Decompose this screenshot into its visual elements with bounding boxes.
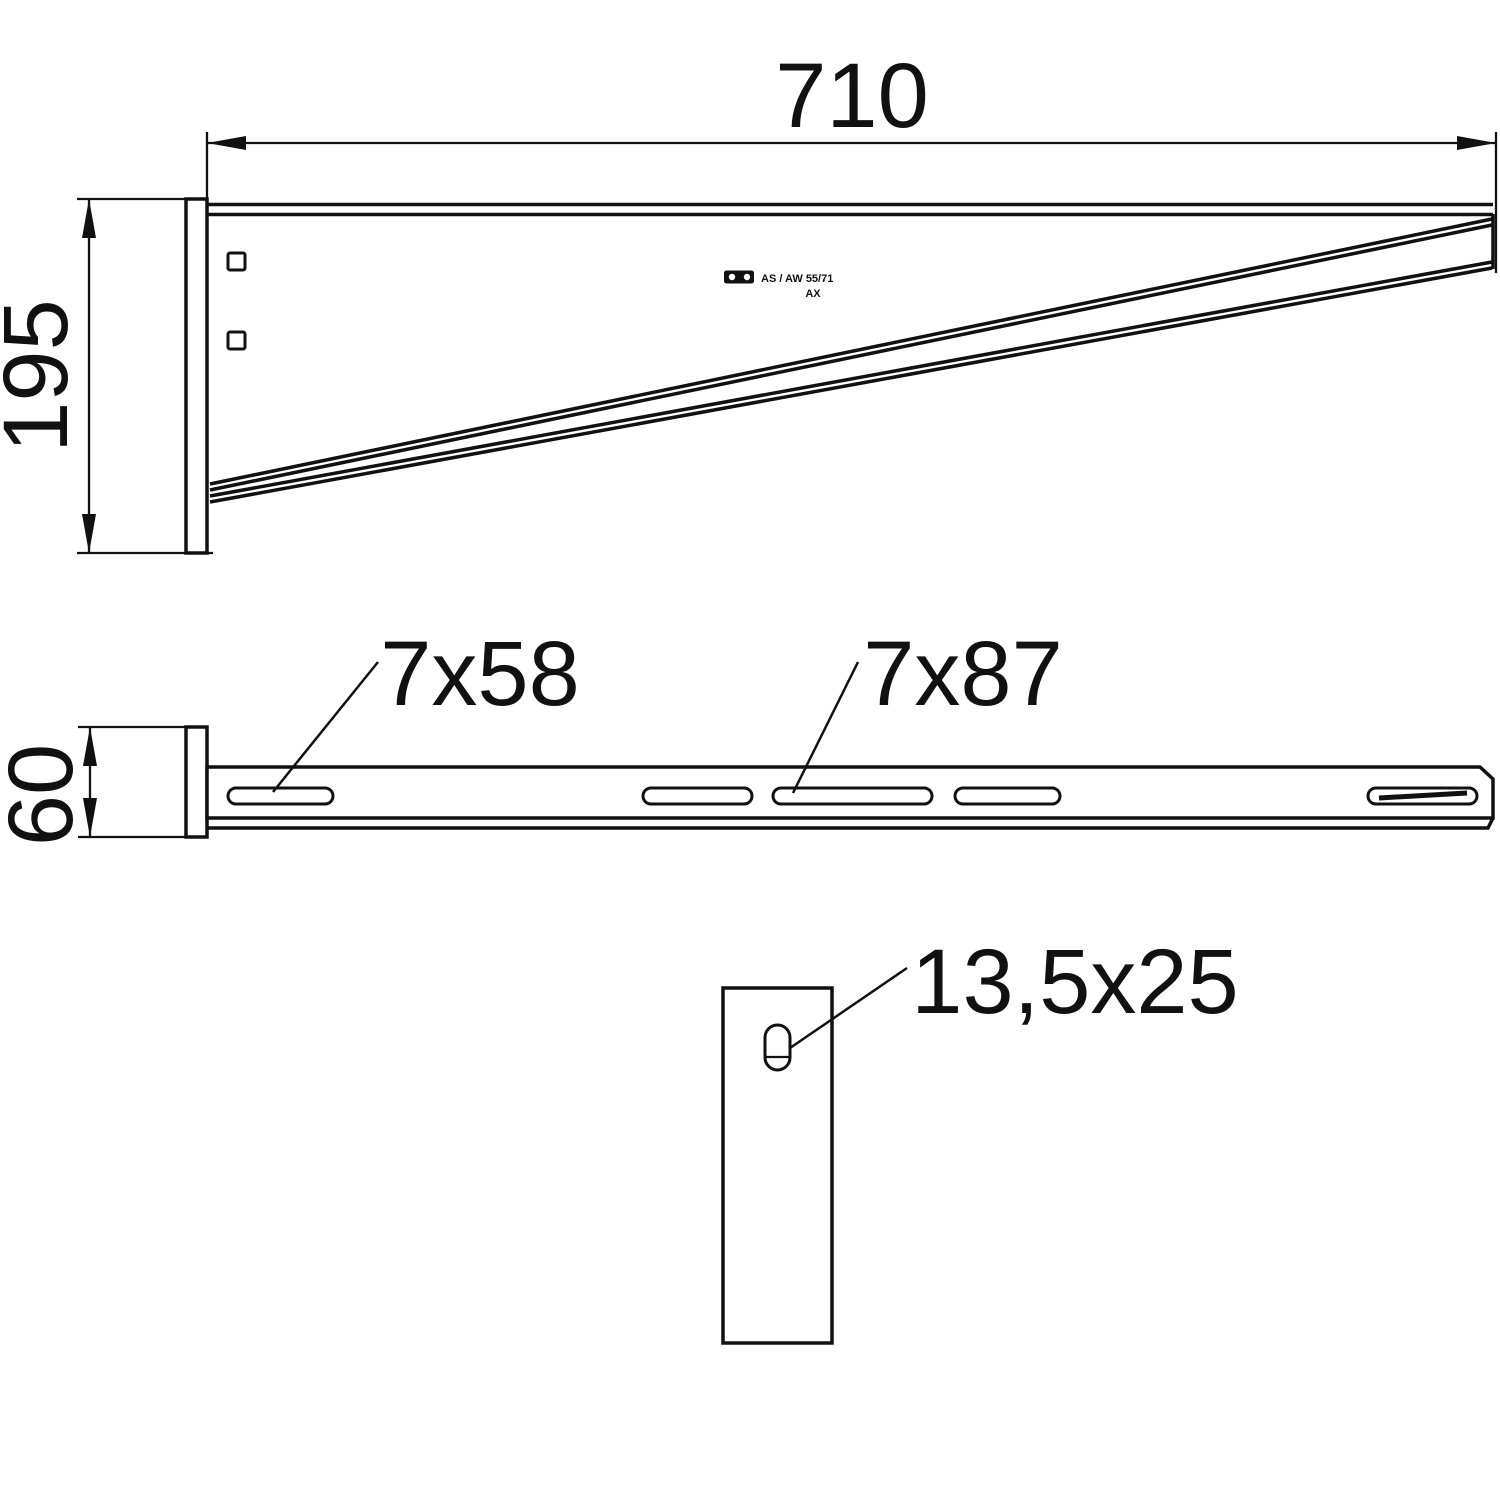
product-stamp: AS / AW 55/71 AX [724, 271, 833, 301]
plate-front-view: 13,5x25 [723, 931, 1239, 1343]
stamp-variant-text: AX [805, 288, 821, 300]
slot-7x58-1 [228, 788, 333, 804]
arrowhead-bottom [82, 514, 96, 553]
brace-line-4 [210, 268, 1492, 502]
square-hole-upper [228, 253, 245, 270]
slot-7x87 [773, 788, 932, 804]
wall-plate-top [186, 727, 207, 837]
drawing-canvas: 710 195 AS / AW 55/71 [0, 0, 1500, 1500]
slot-label-7x87: 7x87 [863, 623, 1063, 725]
arrowhead-top [82, 199, 96, 238]
diagonal-brace [210, 219, 1492, 502]
dim-value-60: 60 [0, 744, 92, 846]
slot-label-7x58: 7x58 [380, 623, 580, 725]
technical-drawing-page: 710 195 AS / AW 55/71 [0, 0, 1500, 1500]
obo-logo-dot-right [744, 274, 750, 280]
brace-line-2 [210, 225, 1492, 490]
brace-line-1 [210, 219, 1492, 484]
arrowhead-left [207, 136, 246, 150]
plate-slot-13-5x25 [765, 1025, 790, 1070]
arrowhead-right [1457, 136, 1496, 150]
dim-value-195: 195 [0, 299, 87, 453]
obo-logo-dot-left [729, 274, 735, 280]
stamp-type-text: AS / AW 55/71 [761, 273, 833, 285]
plan-view: 60 7x58 7x87 [0, 623, 1493, 846]
dimension-60: 60 [0, 727, 207, 846]
side-view: 710 195 AS / AW 55/71 [0, 45, 1496, 553]
dim-value-710: 710 [775, 45, 929, 147]
brace-line-3 [210, 262, 1492, 496]
wall-plate-edge [186, 199, 207, 553]
slot-7x58-3 [955, 788, 1060, 804]
slot-7x58-2 [643, 788, 752, 804]
square-hole-lower [228, 332, 245, 349]
callout-13-5x25: 13,5x25 [790, 931, 1239, 1048]
dimension-710: 710 [207, 45, 1496, 273]
dimension-195: 195 [0, 199, 213, 553]
slot-label-13-5x25: 13,5x25 [911, 931, 1238, 1033]
